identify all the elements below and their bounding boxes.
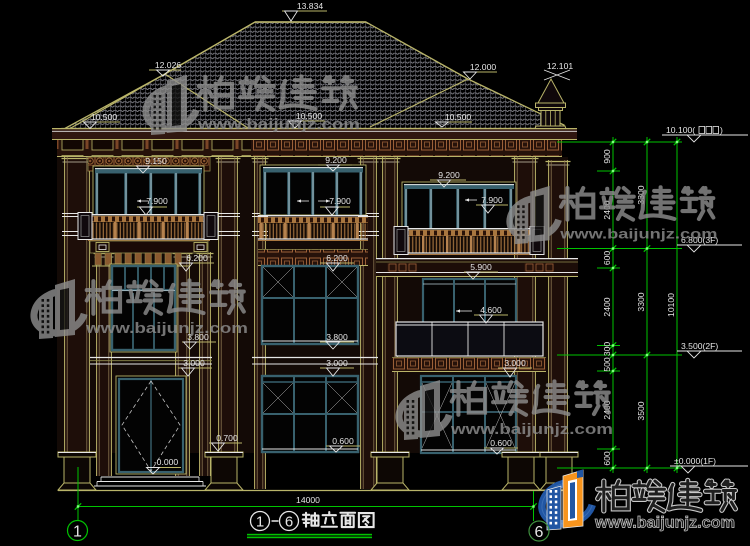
svg-text:3.800: 3.800	[326, 332, 348, 342]
svg-text:9.200: 9.200	[325, 155, 347, 165]
svg-text:6.200: 6.200	[186, 253, 208, 263]
svg-text:7.900: 7.900	[146, 196, 168, 206]
svg-text:10.500: 10.500	[445, 112, 472, 122]
svg-text:3.000: 3.000	[504, 358, 526, 368]
svg-text:www.baijunjz.com: www.baijunjz.com	[85, 321, 248, 337]
svg-text:www.baijunjz.com: www.baijunjz.com	[594, 515, 735, 532]
svg-text:4.600: 4.600	[480, 305, 502, 315]
svg-text:3.000: 3.000	[183, 358, 205, 368]
svg-text:3500: 3500	[636, 401, 646, 420]
svg-text:www.baijunjz.com: www.baijunjz.com	[559, 225, 717, 241]
svg-text:0.600: 0.600	[332, 436, 354, 446]
svg-text:1: 1	[256, 514, 264, 531]
svg-text:5.900: 5.900	[470, 262, 492, 272]
svg-text:600: 600	[602, 451, 612, 466]
svg-text:500: 500	[602, 357, 612, 372]
svg-text:1: 1	[73, 524, 82, 541]
svg-text:3300: 3300	[636, 292, 646, 311]
svg-text:12.026: 12.026	[155, 60, 182, 70]
svg-text:0.600: 0.600	[490, 438, 512, 448]
svg-text:±0.000(1F): ±0.000(1F)	[674, 456, 716, 466]
svg-text:10100: 10100	[666, 293, 676, 317]
svg-text:): )	[720, 125, 723, 135]
svg-text:6: 6	[535, 524, 544, 541]
svg-text:900: 900	[602, 149, 612, 164]
svg-text:7.900: 7.900	[329, 196, 351, 206]
svg-text:www.baijunjz.com: www.baijunjz.com	[450, 422, 613, 438]
svg-text:12.101: 12.101	[547, 61, 574, 71]
svg-text:6.200: 6.200	[326, 253, 348, 263]
svg-text:-0.000: -0.000	[154, 457, 179, 467]
svg-text:7.900: 7.900	[481, 195, 503, 205]
svg-text:600: 600	[602, 251, 612, 266]
svg-text:14000: 14000	[296, 495, 320, 505]
svg-text:www.baijunjz.com: www.baijunjz.com	[197, 117, 360, 133]
svg-text:9.150: 9.150	[145, 156, 167, 166]
svg-text:12.000: 12.000	[470, 62, 497, 72]
svg-text:10.100(: 10.100(	[666, 125, 695, 135]
svg-text:10.500: 10.500	[91, 112, 118, 122]
svg-text:3.000: 3.000	[326, 358, 348, 368]
svg-text:3.500(2F): 3.500(2F)	[681, 341, 718, 351]
svg-text:9.200: 9.200	[438, 170, 460, 180]
svg-text:0.700: 0.700	[216, 433, 238, 443]
svg-text:300: 300	[602, 342, 612, 357]
svg-text:13.834: 13.834	[297, 1, 324, 11]
svg-text:6: 6	[285, 514, 293, 531]
svg-text:2400: 2400	[602, 297, 612, 316]
